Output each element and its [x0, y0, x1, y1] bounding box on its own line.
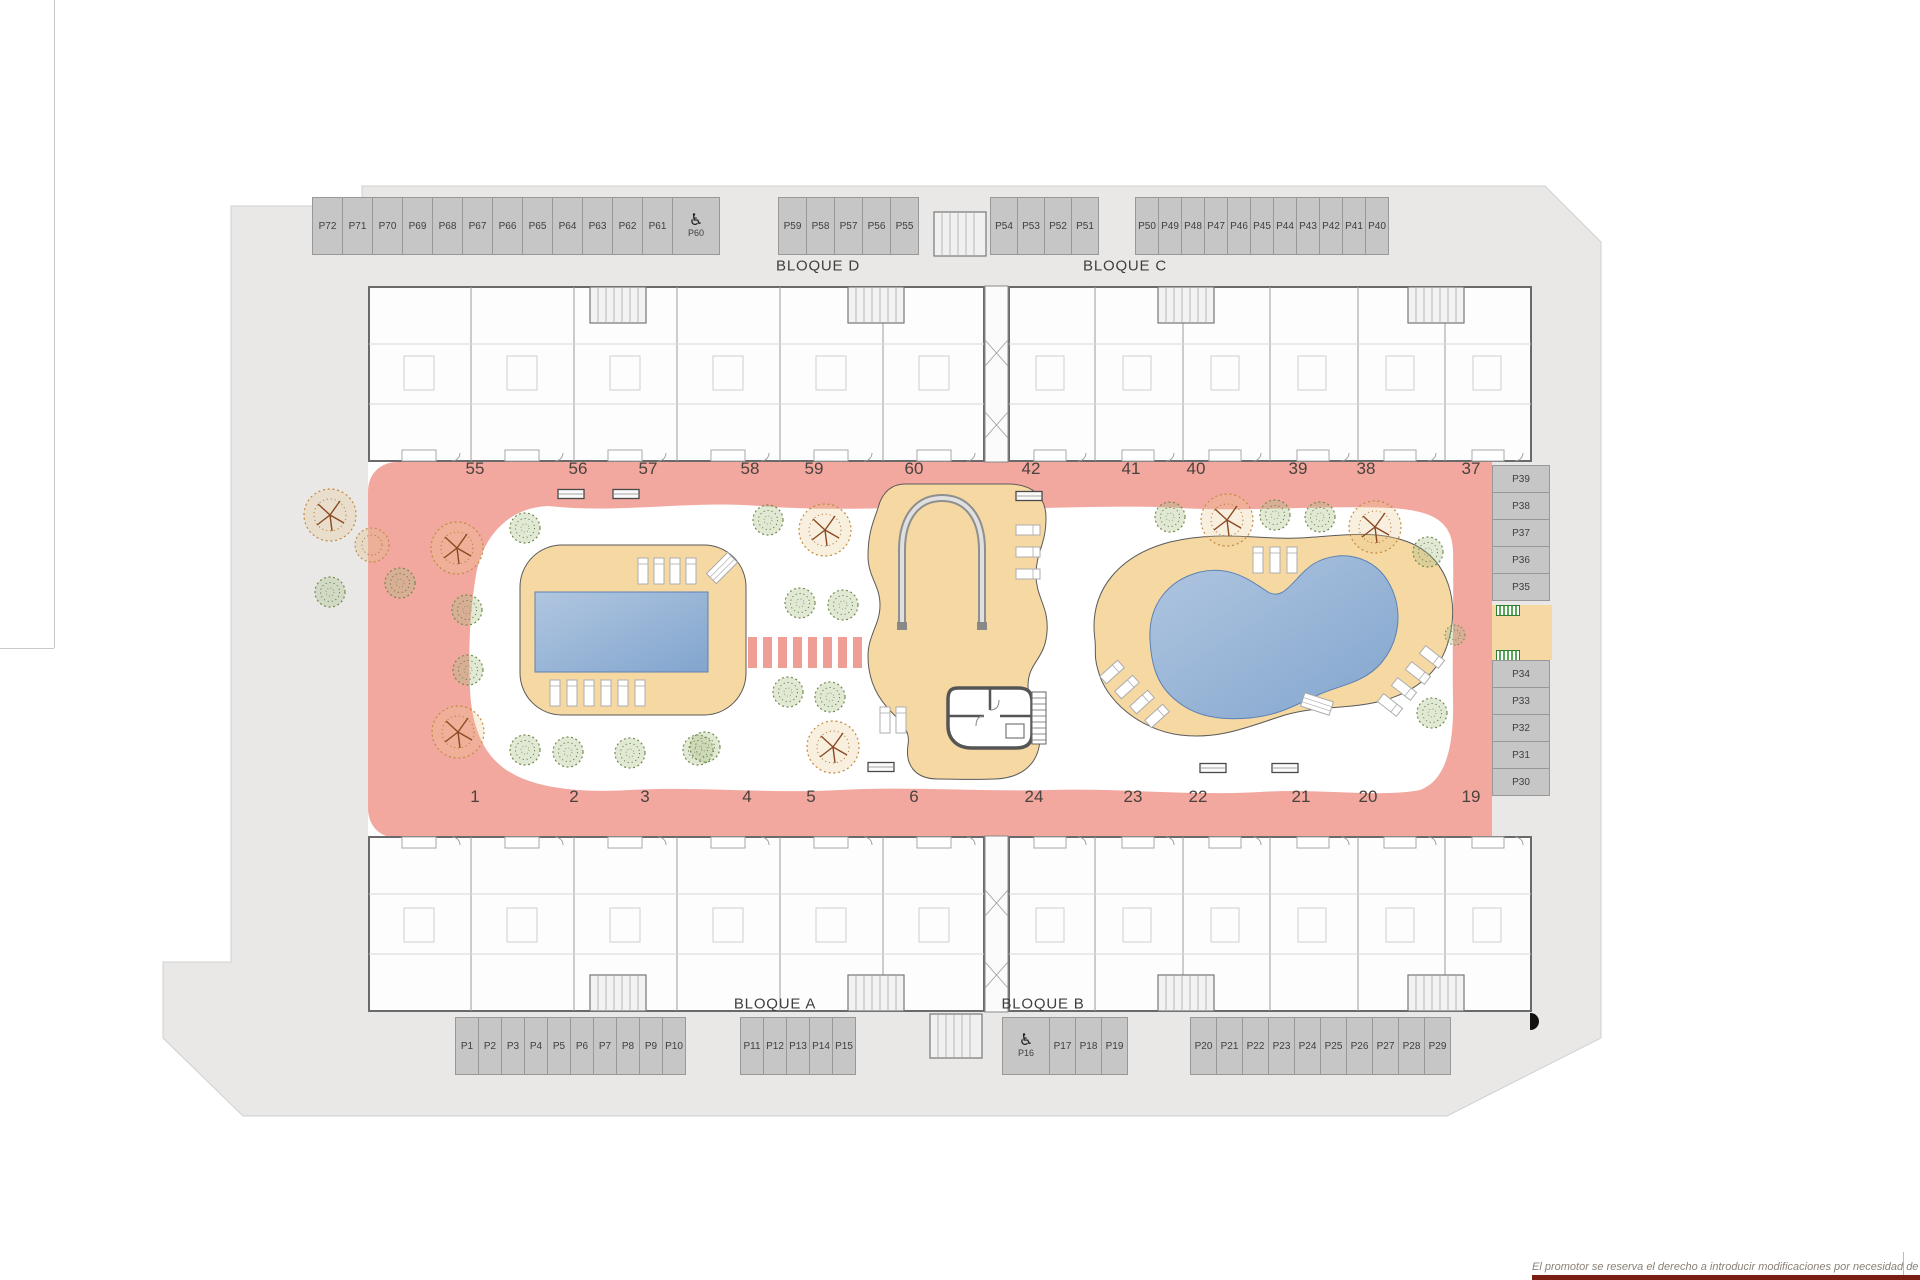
unit-number-38: 38: [1357, 459, 1376, 479]
unit-number-56: 56: [569, 459, 588, 479]
parking-stall-label: P32: [1512, 723, 1530, 734]
parking-stall-label: P40: [1368, 221, 1386, 232]
parking-stall-p50: P50: [1135, 197, 1159, 255]
unit-number-19: 19: [1462, 787, 1481, 807]
parking-stall-label: P10: [665, 1041, 683, 1052]
parking-row-p50-p40: P50P49P48P47P46P45P44P43P42P41P40: [1135, 197, 1389, 255]
parking-stall-p57: P57: [834, 197, 863, 255]
parking-stall-label: P62: [619, 221, 637, 232]
parking-stall-label: P49: [1161, 221, 1179, 232]
parking-stall-p65: P65: [522, 197, 553, 255]
parking-stall-label: P41: [1345, 221, 1363, 232]
parking-stall-label: P1: [461, 1041, 473, 1052]
parking-stall-p55: P55: [890, 197, 919, 255]
parking-stall-p53: P53: [1017, 197, 1045, 255]
parking-stall-label: P59: [784, 221, 802, 232]
parking-column-p34-p30: P34P33P32P31P30: [1492, 660, 1550, 796]
parking-stall-p60-handicap: ♿ P60: [672, 197, 720, 255]
parking-stall-p28: P28: [1398, 1017, 1425, 1075]
parcel-boundary-line: [0, 648, 54, 649]
parking-stall-label: P18: [1080, 1041, 1098, 1052]
parking-stall-p67: P67: [462, 197, 493, 255]
parking-stall-label: P63: [589, 221, 607, 232]
parking-stall-label: P29: [1429, 1041, 1447, 1052]
parking-stall-label: P64: [559, 221, 577, 232]
parking-stall-p61: P61: [642, 197, 673, 255]
parking-stall-p33: P33: [1492, 687, 1550, 715]
unit-number-57: 57: [639, 459, 658, 479]
block-b-label: BLOQUE B: [1001, 996, 1084, 1013]
parking-column-p39-p35: P39P38P37P36P35: [1492, 465, 1550, 601]
parking-stall-label: P52: [1049, 221, 1067, 232]
unit-number-21: 21: [1292, 787, 1311, 807]
parking-stall-label: P23: [1273, 1041, 1291, 1052]
parking-stall-p63: P63: [582, 197, 613, 255]
access-marker-icon: [1496, 605, 1520, 616]
parking-stall-p69: P69: [402, 197, 433, 255]
parking-stall-p20: P20: [1190, 1017, 1217, 1075]
parking-stall-p44: P44: [1273, 197, 1297, 255]
parking-stall-label: P50: [1138, 221, 1156, 232]
parking-stall-label: P36: [1512, 555, 1530, 566]
unit-numbers-bottom: 123456242322212019: [0, 787, 1920, 807]
unit-number-22: 22: [1189, 787, 1208, 807]
parking-stall-label: P54: [995, 221, 1013, 232]
parking-stall-label: P47: [1207, 221, 1225, 232]
parking-row-p16-p19: ♿ P16 P17P18P19: [1002, 1017, 1128, 1075]
parking-stall-p34: P34: [1492, 660, 1550, 688]
parking-stall-p21: P21: [1216, 1017, 1243, 1075]
site-plan-drawing: [0, 0, 1920, 1280]
parking-stall-p24: P24: [1294, 1017, 1321, 1075]
parking-stall-p49: P49: [1158, 197, 1182, 255]
parking-stall-label: P33: [1512, 696, 1530, 707]
parking-stall-label: P70: [379, 221, 397, 232]
parking-row-p72-p60: P72P71P70P69P68P67P66P65P64P63P62P61 ♿ P…: [312, 197, 720, 255]
parking-stall-p11: P11: [740, 1017, 764, 1075]
parking-stall-label: P20: [1195, 1041, 1213, 1052]
unit-numbers-top: 555657585960424140393837: [0, 459, 1920, 479]
parking-stall-label: P7: [599, 1041, 611, 1052]
parking-stall-label: P35: [1512, 582, 1530, 593]
unit-number-55: 55: [466, 459, 485, 479]
parking-stall-label: P16: [1018, 1049, 1034, 1059]
parking-stall-label: P56: [868, 221, 886, 232]
block-c-label: BLOQUE C: [1083, 258, 1167, 275]
parking-stall-p4: P4: [524, 1017, 548, 1075]
parking-row-p11-p15: P11P12P13P14P15: [740, 1017, 856, 1075]
parking-stall-label: P25: [1325, 1041, 1343, 1052]
footer-bar: [1532, 1275, 1920, 1280]
parking-stall-p14: P14: [809, 1017, 833, 1075]
parking-stall-label: P37: [1512, 528, 1530, 539]
parking-stall-label: P22: [1247, 1041, 1265, 1052]
parking-stall-label: P67: [469, 221, 487, 232]
parking-stall-label: P15: [835, 1041, 853, 1052]
parking-stall-label: P30: [1512, 777, 1530, 788]
parking-stall-label: P34: [1512, 669, 1530, 680]
parking-stall-label: P53: [1022, 221, 1040, 232]
parking-stall-label: P5: [553, 1041, 565, 1052]
parking-stall-label: P51: [1076, 221, 1094, 232]
parking-row-p54-p51: P54P53P52P51: [990, 197, 1099, 255]
parking-stall-label: P21: [1221, 1041, 1239, 1052]
unit-number-6: 6: [909, 787, 918, 807]
parking-stall-label: P43: [1299, 221, 1317, 232]
parking-stall-p56: P56: [862, 197, 891, 255]
parking-stall-p38: P38: [1492, 492, 1550, 520]
unit-number-1: 1: [470, 787, 479, 807]
parking-stall-p19: P19: [1101, 1017, 1128, 1075]
parking-stall-p18: P18: [1075, 1017, 1102, 1075]
parking-stall-p16-handicap: ♿ P16: [1002, 1017, 1050, 1075]
parking-stall-p31: P31: [1492, 741, 1550, 769]
block-a-label: BLOQUE A: [734, 996, 816, 1013]
parking-row-p20-p29: P20P21P22P23P24P25P26P27P28P29: [1190, 1017, 1451, 1075]
parking-stall-label: P14: [812, 1041, 830, 1052]
unit-number-58: 58: [741, 459, 760, 479]
wheelchair-icon: ♿: [1019, 1033, 1033, 1049]
parking-stall-p48: P48: [1181, 197, 1205, 255]
parking-stall-p59: P59: [778, 197, 807, 255]
unit-number-23: 23: [1124, 787, 1143, 807]
parking-stall-label: P12: [766, 1041, 784, 1052]
unit-number-2: 2: [569, 787, 578, 807]
parking-stall-p15: P15: [832, 1017, 856, 1075]
parking-stall-p12: P12: [763, 1017, 787, 1075]
parking-stall-p54: P54: [990, 197, 1018, 255]
parking-stall-p35: P35: [1492, 573, 1550, 601]
parking-stall-label: P6: [576, 1041, 588, 1052]
parking-stall-label: P45: [1253, 221, 1271, 232]
parking-stall-p10: P10: [662, 1017, 686, 1075]
parking-row-p1-p10: P1P2P3P4P5P6P7P8P9P10: [455, 1017, 686, 1075]
unit-number-41: 41: [1122, 459, 1141, 479]
parking-stall-p47: P47: [1204, 197, 1228, 255]
parking-stall-label: P31: [1512, 750, 1530, 761]
parking-stall-label: P58: [812, 221, 830, 232]
parking-stall-p62: P62: [612, 197, 643, 255]
parking-row-p59-p55: P59P58P57P56P55: [778, 197, 919, 255]
parking-stall-p52: P52: [1044, 197, 1072, 255]
parking-stall-label: P38: [1512, 501, 1530, 512]
parking-stall-p32: P32: [1492, 714, 1550, 742]
parking-stall-label: P24: [1299, 1041, 1317, 1052]
parking-stall-label: P26: [1351, 1041, 1369, 1052]
unit-number-59: 59: [805, 459, 824, 479]
disclaimer-text: El promotor se reserva el derecho a intr…: [1532, 1261, 1920, 1273]
parking-stall-p43: P43: [1296, 197, 1320, 255]
parking-stall-p41: P41: [1342, 197, 1366, 255]
parking-stall-label: P48: [1184, 221, 1202, 232]
parking-stall-label: P17: [1054, 1041, 1072, 1052]
unit-number-40: 40: [1187, 459, 1206, 479]
parking-stall-p27: P27: [1372, 1017, 1399, 1075]
parking-stall-p58: P58: [806, 197, 835, 255]
unit-number-37: 37: [1462, 459, 1481, 479]
parking-stall-p1: P1: [455, 1017, 479, 1075]
parking-stall-p13: P13: [786, 1017, 810, 1075]
unit-number-4: 4: [742, 787, 751, 807]
parking-stall-p72: P72: [312, 197, 343, 255]
parking-stall-p36: P36: [1492, 546, 1550, 574]
parking-stall-p25: P25: [1320, 1017, 1347, 1075]
parking-stall-p5: P5: [547, 1017, 571, 1075]
parking-stall-p2: P2: [478, 1017, 502, 1075]
parking-stall-p29: P29: [1424, 1017, 1451, 1075]
parking-stall-p71: P71: [342, 197, 373, 255]
parking-stall-p42: P42: [1319, 197, 1343, 255]
parking-stall-label: P3: [507, 1041, 519, 1052]
parking-stall-label: P9: [645, 1041, 657, 1052]
parking-stall-label: P11: [743, 1041, 760, 1052]
parking-stall-p45: P45: [1250, 197, 1274, 255]
unit-number-24: 24: [1025, 787, 1044, 807]
unit-number-39: 39: [1289, 459, 1308, 479]
parking-stall-p64: P64: [552, 197, 583, 255]
parking-stall-label: P68: [439, 221, 457, 232]
parking-stall-label: P57: [840, 221, 858, 232]
parking-stall-label: P71: [349, 221, 367, 232]
parking-stall-label: P72: [319, 221, 337, 232]
parking-stall-p6: P6: [570, 1017, 594, 1075]
parking-stall-label: P66: [499, 221, 517, 232]
parking-stall-label: P2: [484, 1041, 496, 1052]
parking-stall-p8: P8: [616, 1017, 640, 1075]
parking-stall-label: P42: [1322, 221, 1340, 232]
parking-stall-label: P69: [409, 221, 427, 232]
parking-stall-label: P27: [1377, 1041, 1395, 1052]
parking-stall-p66: P66: [492, 197, 523, 255]
parking-stall-p3: P3: [501, 1017, 525, 1075]
unit-number-20: 20: [1359, 787, 1378, 807]
parking-stall-p70: P70: [372, 197, 403, 255]
parking-stall-label: P44: [1276, 221, 1294, 232]
parking-stall-label: P19: [1106, 1041, 1124, 1052]
parking-stall-p7: P7: [593, 1017, 617, 1075]
parking-stall-label: P46: [1230, 221, 1248, 232]
parking-stall-label: P61: [649, 221, 667, 232]
parking-stall-p22: P22: [1242, 1017, 1269, 1075]
parking-stall-label: P4: [530, 1041, 542, 1052]
parking-stall-p40: P40: [1365, 197, 1389, 255]
parking-stall-label: P28: [1403, 1041, 1421, 1052]
parking-stall-p9: P9: [639, 1017, 663, 1075]
parking-stall-p51: P51: [1071, 197, 1099, 255]
parking-stall-label: P65: [529, 221, 547, 232]
parking-stall-label: P55: [896, 221, 914, 232]
unit-number-3: 3: [640, 787, 649, 807]
parking-stall-p23: P23: [1268, 1017, 1295, 1075]
block-d-label: BLOQUE D: [776, 258, 860, 275]
parking-stall-label: P13: [789, 1041, 807, 1052]
parking-stall-label: P60: [688, 229, 704, 239]
parking-stall-p17: P17: [1049, 1017, 1076, 1075]
parking-stall-p46: P46: [1227, 197, 1251, 255]
parking-stall-p26: P26: [1346, 1017, 1373, 1075]
parcel-boundary-line: [54, 0, 55, 648]
unit-number-42: 42: [1022, 459, 1041, 479]
parking-stall-p37: P37: [1492, 519, 1550, 547]
parking-stall-label: P8: [622, 1041, 634, 1052]
unit-number-60: 60: [905, 459, 924, 479]
unit-number-5: 5: [806, 787, 815, 807]
wheelchair-icon: ♿: [689, 213, 703, 229]
parking-stall-p68: P68: [432, 197, 463, 255]
